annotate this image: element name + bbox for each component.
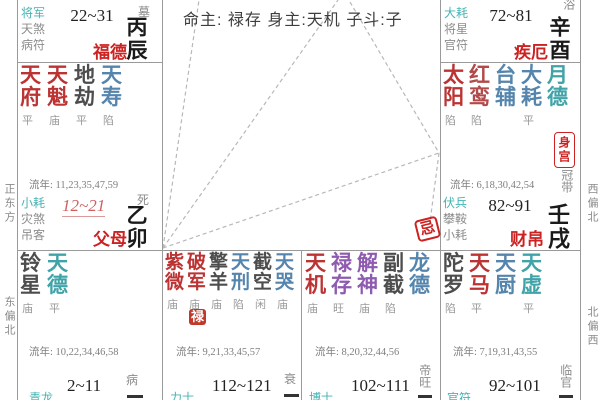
star-col: 天厨 [495,253,521,313]
year-god: 伏兵 [443,195,467,211]
palace-jie: 大耗 将星 官符 72~81 疾厄 沐浴 辛酉 [440,0,580,62]
star-col: 天机 庙 [305,253,331,313]
year-gods: 博士 [309,390,333,400]
year-god: 小耗 [21,195,45,211]
center-panel: 命主: 禄存 身主:天机 子斗:子 [162,0,440,250]
star-col: 天哭 庙 [275,253,297,309]
year-god: 将星 [444,21,468,37]
annual-years: 流年: 9,21,33,45,57 [176,344,260,359]
palace-caibo: 太阳 陷 红鸾 陷 台辅 大耗 平 月德 流年: 6,18,30,42,54 身… [440,62,580,250]
star-col: 天寿 陷 [101,65,128,125]
star-name: 天机 [305,253,327,297]
grid-line-v4 [580,0,581,400]
star-brightness: 陷 [471,112,482,125]
lifecycle-stage: 病 [126,371,138,388]
star-name: 天德 [47,253,69,297]
star-col: 禄存 旺 [331,253,357,313]
year-god: 官符 [444,37,468,53]
palace-name: 财帛 [510,225,544,250]
star-brightness: 平 [76,112,87,125]
star-col: 天刑 陷 [231,253,253,309]
star-col: 紫微 庙 [165,253,187,309]
star-name: 副截 [383,253,405,297]
star-name: 破军 [187,253,207,293]
star-brightness: 陷 [385,300,396,313]
compass-label-east-north: 东偏北 [1,296,17,338]
stem-branch: 壬戌 [546,203,568,251]
star-name: 天虚 [521,253,543,297]
lifecycle-stage: 衰 [284,370,296,387]
year-god: 官符 [447,390,471,400]
year-god: 吊客 [21,227,45,243]
year-god: 力士 [170,390,194,400]
annual-years: 流年: 8,20,32,44,56 [315,344,399,359]
star-col: 大耗 平 [521,65,547,125]
star-name: 天寿 [101,65,123,109]
annual-years: 流年: 10,22,34,46,58 [29,344,119,359]
palace-name: 福德 [93,38,127,63]
star-brightness: 平 [22,112,33,125]
star-col: 红鸾 陷 [469,65,495,125]
star-brightness: 庙 [22,300,33,313]
age-range: 102~111 [351,376,410,396]
palace-b4: 陀罗 陷 天马 平 天厨 天虚 平 流年: 7,19,31,43,55 官符 9… [440,250,580,400]
year-god: 将军 [21,5,45,21]
star-name: 天刑 [231,253,251,293]
star-col: 擎羊 庙 [209,253,231,309]
stem-branch: 丙辰 [125,16,146,62]
palace-b3: 天机 庙 禄存 旺 解神 庙 副截 陷 龙德 流年: 8,20,32,44,56… [301,250,440,400]
star-name: 天厨 [495,253,517,297]
star-col: 天府 平 [20,65,47,125]
star-name: 大耗 [521,65,543,109]
star-brightness: 闲 [255,296,266,309]
star-name: 解神 [357,253,379,297]
year-god: 大耗 [444,5,468,21]
palace-b2: 紫微 庙 破军 庙 擎羊 庙 天刑 陷 截空 闲 天哭 庙 [162,250,301,400]
annual-years: 流年: 7,19,31,43,55 [453,344,537,359]
star-brightness: 陷 [445,112,456,125]
year-gods: 官符 [447,390,471,400]
star-name: 龙德 [409,253,431,297]
year-god: 灾煞 [21,211,45,227]
year-gods: 青龙 [29,390,53,400]
lifecycle-stage: 临官 [558,364,572,394]
star-brightness: 庙 [167,296,178,309]
star-name: 紫微 [165,253,185,293]
age-range: 92~101 [489,376,541,396]
stem-branch-sliver [559,395,573,398]
palace-fumu: 天府 平 天魁 庙 地劫 平 天寿 陷 流年: 11,23,35,47,59 小… [17,62,162,250]
ziwei-chart: 正东方 东偏北 西偏北 北偏西 命主: 禄存 身主:天机 子斗:子 将军 天煞 … [0,0,600,400]
stem-branch-sliver [127,395,143,398]
year-gods: 力士 [170,390,194,400]
star-col: 龙德 [409,253,435,313]
age-range: 2~11 [67,376,101,396]
star-name: 天魁 [47,65,69,109]
star-row: 天机 庙 禄存 旺 解神 庙 副截 陷 龙德 [305,253,435,313]
star-row: 紫微 庙 破军 庙 擎羊 庙 天刑 陷 截空 闲 天哭 庙 [165,253,297,309]
star-brightness: 陷 [233,296,244,309]
annual-years: 流年: 11,23,35,47,59 [29,177,118,192]
age-range: 22~31 [57,6,127,26]
star-brightness: 庙 [189,296,200,309]
stem-branch-sliver [284,394,299,397]
star-brightness: 平 [49,300,60,313]
year-god: 博士 [309,390,333,400]
star-name: 天马 [469,253,491,297]
stem-branch-sliver [418,395,432,398]
star-col: 月德 [547,65,573,125]
star-row: 铃星 庙 天德 平 [20,253,74,313]
star-row: 陀罗 陷 天马 平 天厨 天虚 平 [443,253,547,313]
star-name: 陀罗 [443,253,465,297]
star-col: 截空 闲 [253,253,275,309]
star-name: 天哭 [275,253,295,293]
chart-masters-info: 命主: 禄存 身主:天机 子斗:子 [183,6,403,30]
star-col: 太阳 陷 [443,65,469,125]
body-palace-badge: 身宫 [554,132,575,168]
year-god: 天煞 [21,21,45,37]
star-col: 地劫 平 [74,65,101,125]
palace-name: 疾厄 [514,38,548,63]
star-brightness: 陷 [445,300,456,313]
year-gods: 小耗 灾煞 吊客 [21,195,45,243]
star-row: 太阳 陷 红鸾 陷 台辅 大耗 平 月德 [443,65,573,125]
age-range-current: 12~21 [62,196,105,217]
age-range: 112~121 [212,376,272,396]
year-god: 青龙 [29,390,53,400]
year-gods: 大耗 将星 官符 [444,5,468,53]
star-col: 解神 庙 [357,253,383,313]
star-col: 天虚 平 [521,253,547,313]
star-col: 台辅 [495,65,521,125]
star-brightness: 平 [523,300,534,313]
hua-lu-badge: 禄 [189,309,206,325]
star-name: 月德 [547,65,569,109]
age-range: 72~81 [478,6,544,26]
star-brightness: 庙 [359,300,370,313]
star-name: 地劫 [74,65,96,109]
star-brightness: 庙 [277,296,288,309]
star-name: 红鸾 [469,65,491,109]
star-col: 天魁 庙 [47,65,74,125]
palace-fude: 将军 天煞 病符 22~31 福德 墓 丙辰 [17,0,162,62]
star-brightness: 旺 [333,300,344,313]
lifecycle-stage: 帝旺 [417,364,431,394]
star-row: 天府 平 天魁 庙 地劫 平 天寿 陷 [20,65,128,125]
star-col: 天德 平 [47,253,74,313]
star-brightness: 庙 [211,296,222,309]
star-col: 天马 平 [469,253,495,313]
star-brightness: 庙 [49,112,60,125]
star-col: 陀罗 陷 [443,253,469,313]
star-name: 铃星 [20,253,42,297]
year-gods: 将军 天煞 病符 [21,5,45,53]
star-col: 铃星 庙 [20,253,47,313]
age-range: 82~91 [480,196,540,216]
star-name: 禄存 [331,253,353,297]
star-name: 台辅 [495,65,517,109]
star-brightness: 陷 [103,112,114,125]
star-name: 截空 [253,253,273,293]
palace-name: 父母 [93,225,127,250]
palace-b1: 铃星 庙 天德 平 流年: 10,22,34,46,58 青龙 2~11 病 [17,250,162,400]
compass-label-east: 正东方 [1,183,17,225]
year-gods: 伏兵 攀鞍 小耗 [443,195,467,243]
star-name: 天府 [20,65,42,109]
compass-label-west-north: 西偏北 [584,183,600,225]
annual-years: 流年: 6,18,30,42,54 [450,177,534,192]
star-name: 太阳 [443,65,465,109]
star-name: 擎羊 [209,253,229,293]
year-god: 病符 [21,37,45,53]
stem-branch: 辛酉 [548,16,569,62]
stem-branch: 乙卯 [125,204,146,250]
year-god: 攀鞍 [443,211,467,227]
star-brightness: 平 [471,300,482,313]
compass-label-north-west: 北偏西 [584,306,600,348]
star-brightness: 平 [523,112,534,125]
star-col: 破军 庙 [187,253,209,309]
year-god: 小耗 [443,227,467,243]
star-col: 副截 陷 [383,253,409,313]
star-brightness: 庙 [307,300,318,313]
lifecycle-stage: 冠带 [559,169,573,199]
